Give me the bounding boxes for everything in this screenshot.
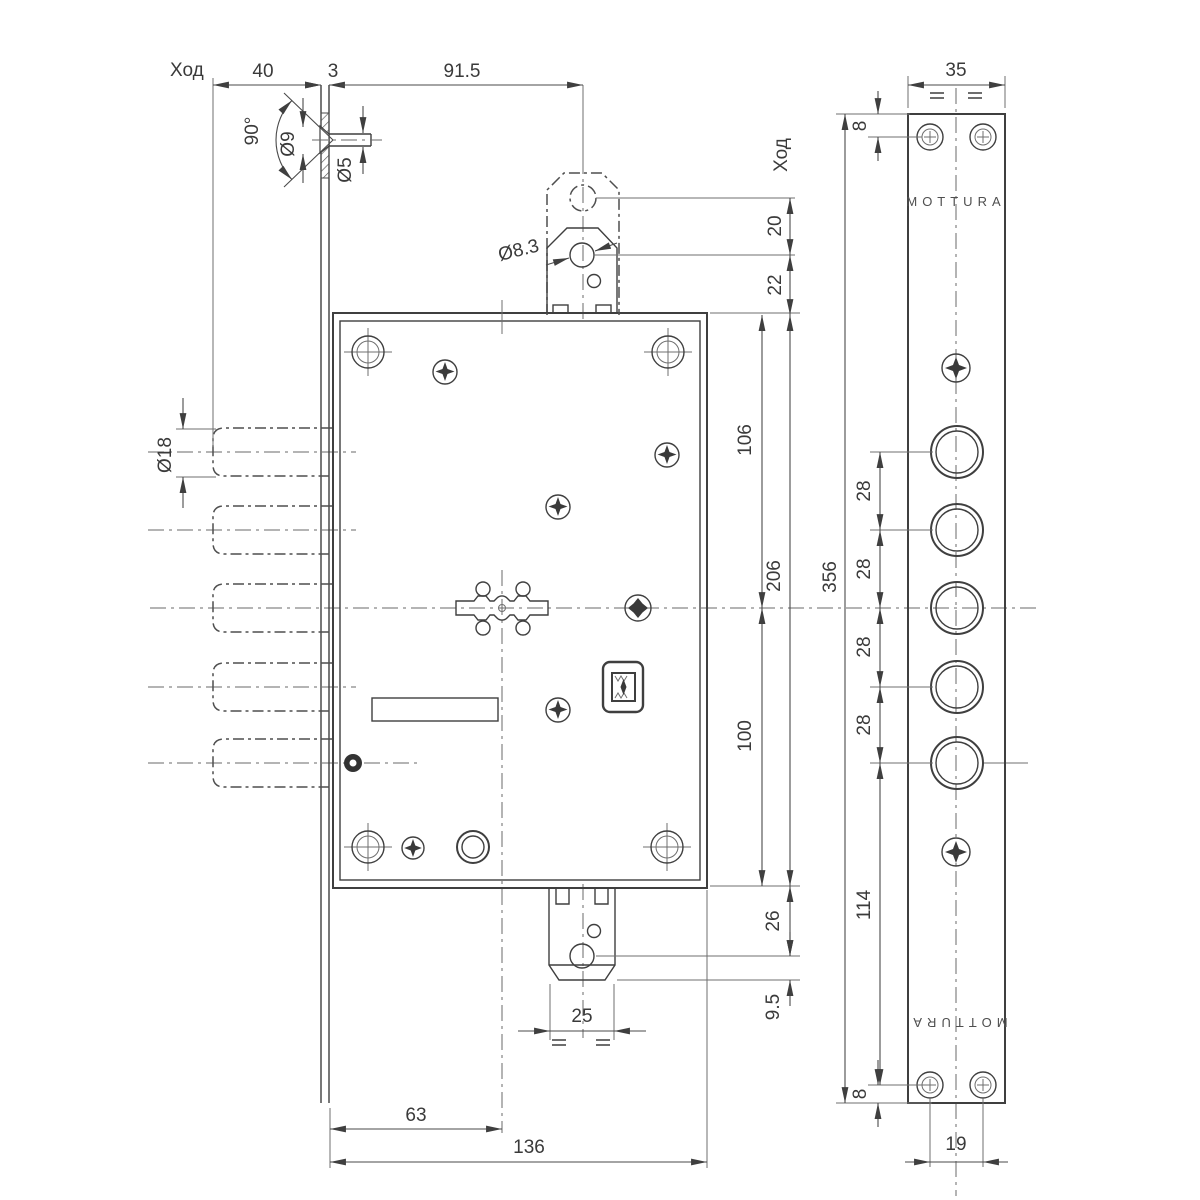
screw-icon: [433, 360, 457, 384]
dim-latch-offset: 91.5: [444, 61, 481, 82]
technical-drawing-page: MOTTURA MOTTURA: [0, 0, 1200, 1200]
cylinder-hole: [457, 831, 489, 863]
lock-technical-drawing: MOTTURA MOTTURA: [0, 0, 1200, 1200]
fixing-hole-top-right: [644, 328, 692, 376]
extension-lines: [176, 76, 1005, 1168]
dimension-lines: [183, 85, 1008, 1162]
dim-bolt-dia: Ø18: [155, 437, 176, 473]
aux-bracket-bottom: [549, 888, 615, 980]
dim-screw-pitch: 19: [945, 1134, 966, 1155]
plate-screw-top-right: [970, 124, 996, 150]
lever-slot: [372, 698, 498, 721]
faceplate-edge-view: [276, 85, 382, 1103]
plate-phillips-screw-upper: [942, 354, 970, 382]
dim-faceplate-thickness: 3: [328, 61, 339, 82]
dim-plate-length: 356: [820, 561, 841, 593]
dim-latch-travel: 20: [765, 215, 786, 236]
dim-latch-hole-dia: Ø8.3: [496, 235, 541, 265]
screw-icon: [402, 837, 424, 859]
bolt-hole-4: [931, 661, 983, 713]
dim-hole-pitch-1: 28: [854, 480, 875, 501]
dim-aux-offset: 26: [763, 910, 784, 931]
dim-hole-pitch-3: 28: [854, 636, 875, 657]
dim-latch-gap: 22: [765, 274, 786, 295]
dim-top-to-center: 106: [735, 424, 756, 456]
stroke-label-left: Ход: [170, 60, 204, 81]
bolt-hole-5: [931, 737, 983, 789]
lock-body: [333, 300, 707, 888]
fixing-hole-top-left: [344, 328, 392, 376]
dim-backset: 63: [405, 1105, 426, 1126]
plate-phillips-screw-lower: [942, 838, 970, 866]
dim-bottom-span: 114: [854, 889, 875, 920]
bolt-hole-1: [931, 426, 983, 478]
dim-plate-width: 35: [945, 60, 966, 81]
selector-window: [603, 662, 643, 712]
screw-icon: [546, 495, 570, 519]
dim-body-height: 206: [764, 560, 785, 592]
dim-plate-edge-bottom: 8: [850, 1089, 871, 1100]
dim-countersink-angle: 90°: [242, 117, 263, 146]
dim-hole-pitch-2: 28: [854, 558, 875, 579]
dim-screw-hole-dia: Ø5: [335, 157, 356, 182]
plate-screw-bottom-right: [970, 1072, 996, 1098]
latch-pin-hole: [570, 243, 594, 267]
fixing-hole-bottom-right: [643, 823, 691, 871]
dim-plate-edge-top: 8: [850, 121, 871, 132]
dim-body-depth: 136: [513, 1137, 545, 1158]
dim-aux-width: 25: [571, 1006, 592, 1027]
bolt-hole-2: [931, 504, 983, 556]
fixing-hole-bottom-left: [344, 823, 392, 871]
screw-icon: [546, 698, 570, 722]
brand-logo-top: MOTTURA: [906, 194, 1005, 209]
brand-logo-bottom: MOTTURA: [908, 1015, 1007, 1030]
dim-hole-pitch-4: 28: [854, 714, 875, 735]
dim-aux-tip: 9.5: [763, 994, 784, 1020]
dim-center-to-bottom: 100: [735, 720, 756, 752]
screw-icon: [655, 443, 679, 467]
cam-screw-icon: [625, 595, 651, 621]
stroke-label-right: Ход: [771, 138, 792, 172]
pin-hole: [344, 754, 362, 772]
dim-bolt-travel: 40: [252, 61, 273, 82]
dim-screw-head-dia: Ø9: [278, 131, 299, 156]
